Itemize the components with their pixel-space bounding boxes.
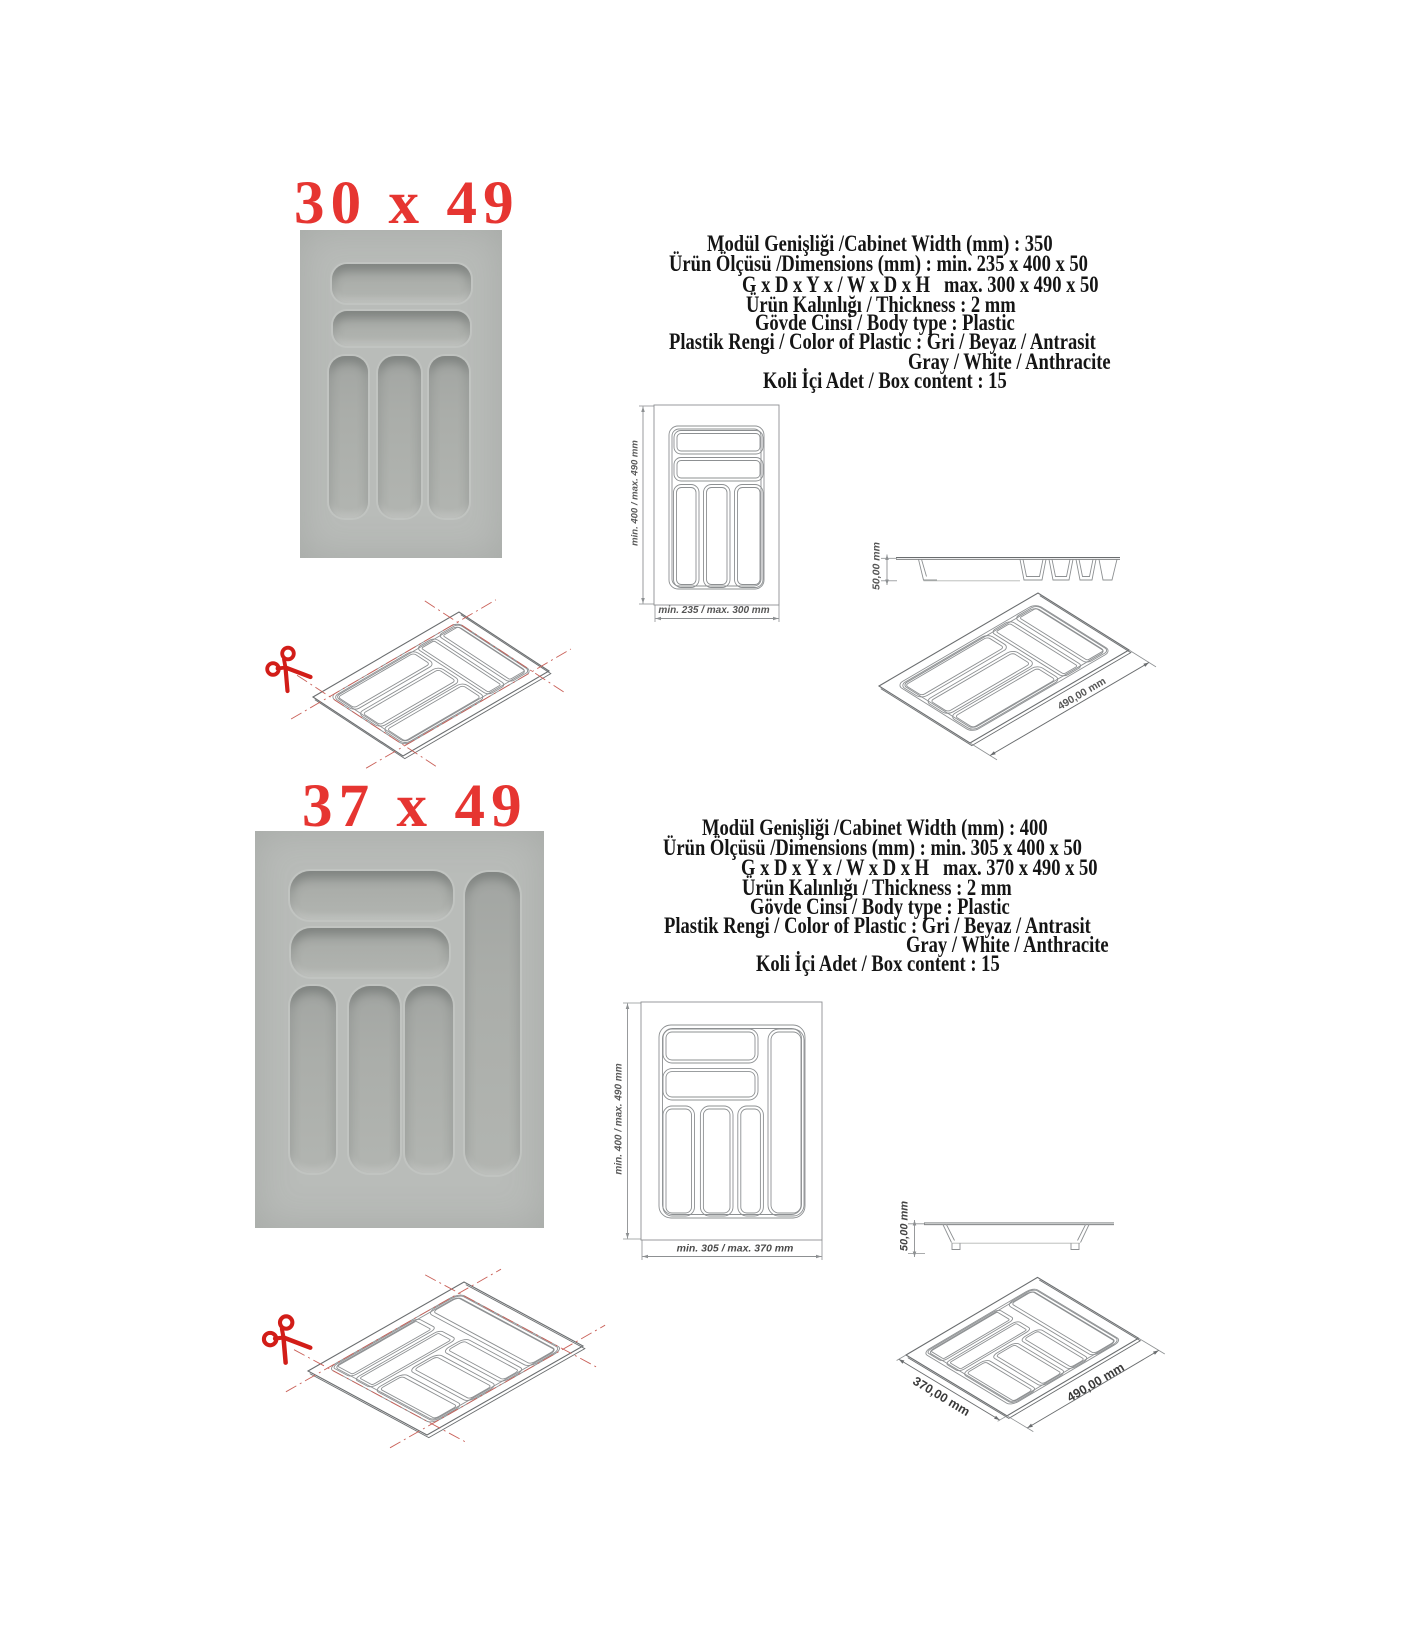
svg-text:50,00 mm: 50,00 mm	[898, 1201, 910, 1251]
svg-text:min. 235 / max. 300 mm: min. 235 / max. 300 mm	[658, 605, 769, 616]
svg-text:50,00 mm: 50,00 mm	[870, 542, 882, 590]
svg-text:min. 400 / max. 490 mm: min. 400 / max. 490 mm	[630, 440, 641, 546]
svg-text:370,00 mm: 370,00 mm	[910, 1374, 972, 1419]
svg-text:min. 400 / max. 490 mm: min. 400 / max. 490 mm	[614, 1063, 625, 1174]
svg-text:min. 305 / max. 370 mm: min. 305 / max. 370 mm	[677, 1242, 794, 1254]
